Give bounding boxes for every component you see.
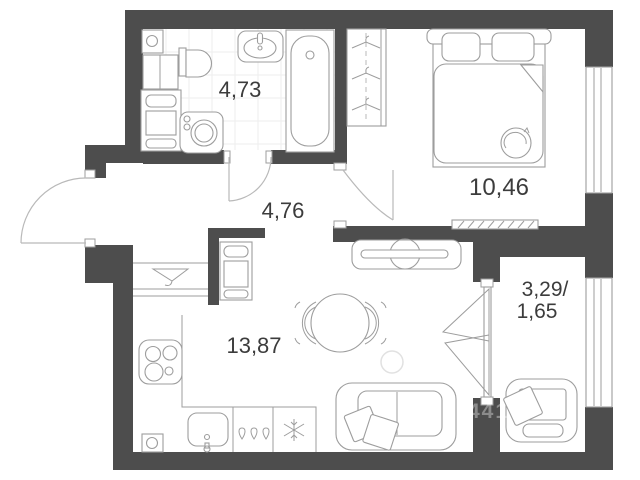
tall-cabinet [143,55,178,89]
bathroom-area-label: 4,73 [219,77,262,102]
bathtub [286,30,334,152]
balcony-area-label-line1: 3,29/ [522,278,569,301]
bathroom-cabinet [141,90,181,151]
dining-table [311,294,369,352]
sofa [336,383,456,451]
bedroom-window [586,67,612,193]
floor-plan-page: 4,73 4,76 10,46 13,87 3,29/ 1,65 441 [0,0,640,480]
armchair [503,379,577,442]
tv [361,250,448,258]
floor-plan: 4,73 4,76 10,46 13,87 3,29/ 1,65 441 [0,0,640,480]
bedroom-radiator [452,220,538,229]
bathroom-sink [238,31,283,62]
hallway-area-label: 4,76 [262,198,305,223]
tv-stand [352,239,461,269]
balcony-window [586,278,612,407]
living-kitchen-area-label: 13,87 [226,333,281,358]
hallway-cabinet [220,242,252,300]
balcony-area-label-line2: 1,65 [517,300,558,323]
washing-machine [180,112,223,153]
bed [427,29,551,167]
vent-box [142,30,163,53]
watermark-digits: 441 [468,400,509,423]
wardrobe [347,29,386,126]
bedroom-area-label: 10,46 [469,174,529,201]
stove [139,340,182,384]
floor-drain [142,434,163,452]
